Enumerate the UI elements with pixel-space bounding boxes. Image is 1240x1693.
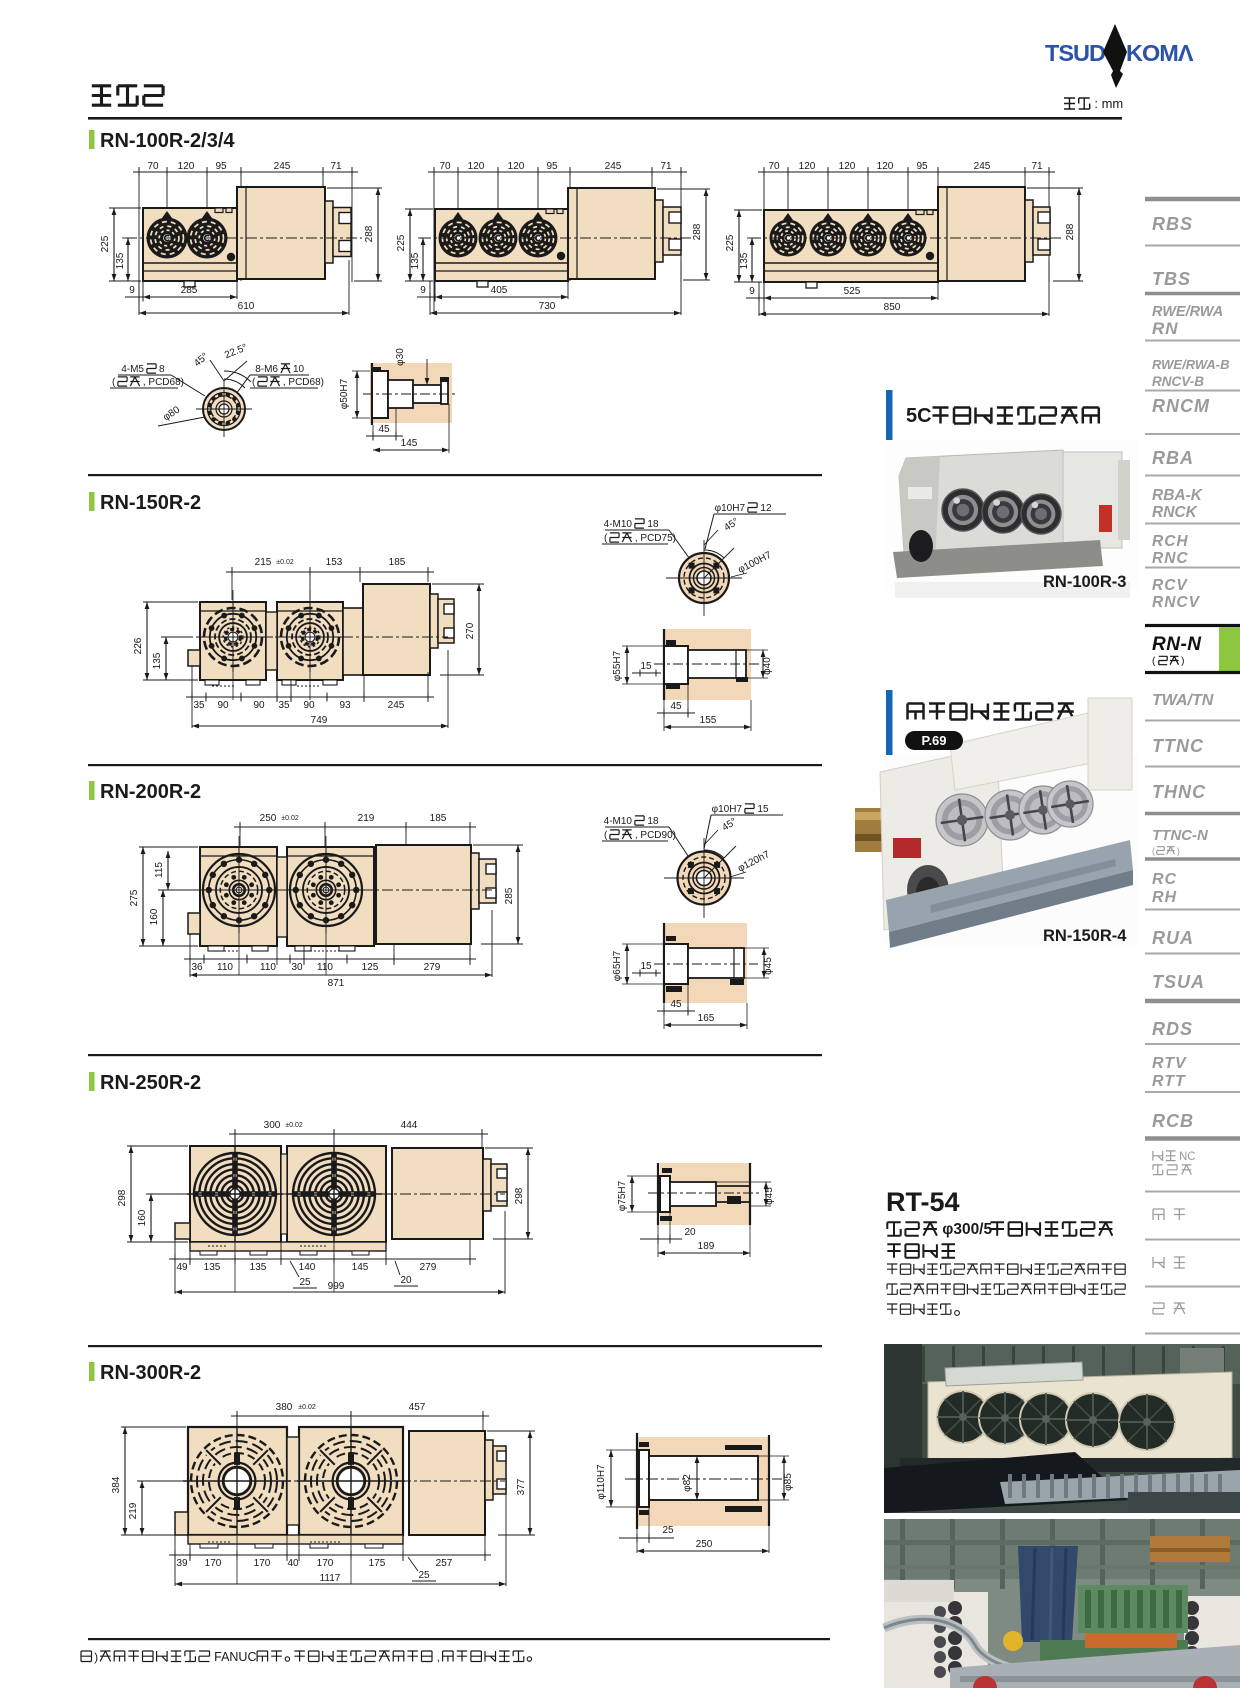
svg-text:φ30: φ30 (395, 348, 406, 366)
svg-text:444: 444 (401, 1120, 418, 1131)
svg-text:298: 298 (117, 1189, 128, 1206)
svg-text:RTV: RTV (1152, 1055, 1187, 1072)
svg-text:120: 120 (468, 161, 485, 172)
svg-text:850: 850 (884, 302, 901, 313)
svg-text:RNCM: RNCM (1152, 396, 1210, 416)
svg-text:125: 125 (362, 962, 379, 973)
svg-text:160: 160 (149, 908, 160, 925)
svg-text:TSUA: TSUA (1152, 972, 1205, 992)
svg-text:NC: NC (1179, 1151, 1196, 1163)
svg-text:120: 120 (839, 161, 856, 172)
svg-text:±0.02: ±0.02 (281, 815, 299, 822)
svg-text:φ50H7: φ50H7 (339, 378, 350, 409)
svg-text:RN-150R-4: RN-150R-4 (1043, 927, 1127, 945)
svg-text:8: 8 (159, 364, 165, 375)
svg-text:): ) (1181, 656, 1184, 667)
svg-text:288: 288 (364, 225, 375, 242)
svg-text:4-M10: 4-M10 (604, 816, 633, 827)
svg-text:RCV: RCV (1152, 577, 1188, 594)
svg-text:225: 225 (396, 234, 407, 251)
svg-text:RWE/RWA-B: RWE/RWA-B (1152, 357, 1230, 372)
svg-text:871: 871 (328, 978, 345, 989)
svg-text:RCB: RCB (1152, 1111, 1194, 1131)
svg-text:(: ( (1152, 846, 1155, 856)
svg-text:377: 377 (516, 1478, 527, 1495)
svg-text:9: 9 (749, 286, 755, 297)
svg-text:457: 457 (409, 1402, 426, 1413)
svg-text:245: 245 (605, 161, 622, 172)
svg-text:384: 384 (111, 1476, 122, 1493)
svg-text:71: 71 (1031, 161, 1043, 172)
svg-text:TWA/TN: TWA/TN (1152, 692, 1214, 709)
svg-text:135: 135 (152, 652, 163, 669)
svg-text:71: 71 (330, 161, 342, 172)
svg-text:TBS: TBS (1152, 269, 1191, 289)
svg-text:45: 45 (670, 999, 682, 1010)
svg-text:135: 135 (115, 252, 126, 269)
svg-text:93: 93 (339, 700, 351, 711)
svg-text:610: 610 (238, 301, 255, 312)
svg-text:90: 90 (303, 700, 315, 711)
svg-text:525: 525 (844, 286, 861, 297)
svg-text:φ10H7: φ10H7 (715, 503, 746, 514)
svg-text:257: 257 (436, 1558, 453, 1569)
svg-text:RN-250R-2: RN-250R-2 (100, 1072, 201, 1094)
svg-text:RCH: RCH (1152, 533, 1189, 550)
svg-text:): ) (94, 1650, 98, 1664)
svg-text:70: 70 (439, 161, 451, 172)
svg-text:RBS: RBS (1152, 214, 1193, 234)
svg-text:RBA-K: RBA-K (1152, 487, 1204, 504)
svg-text:35: 35 (193, 700, 205, 711)
svg-text:8-M6: 8-M6 (255, 364, 278, 375)
svg-text:999: 999 (328, 1281, 345, 1292)
svg-text:71: 71 (660, 161, 672, 172)
svg-text:110: 110 (260, 962, 276, 973)
svg-text:120: 120 (178, 161, 195, 172)
svg-text:12: 12 (760, 503, 772, 514)
svg-text:±0.02: ±0.02 (285, 1122, 303, 1129)
svg-text:, PCD75): , PCD75) (635, 533, 676, 544)
svg-text:45: 45 (378, 424, 390, 435)
svg-text:RDS: RDS (1152, 1019, 1193, 1039)
svg-text:145: 145 (401, 438, 418, 449)
svg-text:95: 95 (916, 161, 928, 172)
svg-text:±0.02: ±0.02 (276, 559, 294, 566)
svg-text:145: 145 (352, 1262, 369, 1273)
svg-text:1117: 1117 (320, 1573, 341, 1584)
svg-text:RN-300R-2: RN-300R-2 (100, 1362, 201, 1384)
svg-text:35: 35 (278, 700, 290, 711)
svg-text:RN-N: RN-N (1152, 634, 1202, 655)
svg-text:25: 25 (662, 1525, 674, 1536)
svg-text:φ300/5: φ300/5 (942, 1221, 992, 1238)
svg-text:245: 245 (388, 700, 405, 711)
svg-text:110: 110 (217, 962, 233, 973)
svg-text:185: 185 (389, 557, 406, 568)
svg-text:275: 275 (129, 889, 140, 906)
svg-text:175: 175 (369, 1558, 386, 1569)
svg-text:90: 90 (253, 700, 265, 711)
svg-text:120: 120 (799, 161, 816, 172)
svg-text:10: 10 (293, 364, 305, 375)
svg-text:18: 18 (647, 816, 659, 827)
svg-text:245: 245 (274, 161, 291, 172)
svg-text:288: 288 (692, 223, 703, 240)
svg-text:95: 95 (546, 161, 558, 172)
svg-text:FANUC: FANUC (214, 1650, 256, 1664)
svg-text:189: 189 (698, 1241, 715, 1252)
svg-text:300: 300 (264, 1120, 281, 1131)
svg-text:405: 405 (491, 285, 508, 296)
svg-text:95: 95 (215, 161, 227, 172)
svg-text:40: 40 (287, 1558, 299, 1569)
svg-text:170: 170 (317, 1558, 334, 1569)
svg-text:20: 20 (684, 1227, 696, 1238)
svg-text:160: 160 (137, 1209, 148, 1226)
svg-text:18: 18 (647, 519, 659, 530)
svg-text:250: 250 (696, 1539, 713, 1550)
svg-text:135: 135 (250, 1262, 267, 1273)
svg-text:±0.02: ±0.02 (298, 1404, 316, 1411)
svg-text:THNC: THNC (1152, 782, 1206, 802)
svg-text:380: 380 (276, 1402, 293, 1413)
svg-text:120: 120 (508, 161, 525, 172)
svg-text:RN-100R-3: RN-100R-3 (1043, 573, 1126, 591)
svg-text:15: 15 (640, 961, 652, 972)
svg-text:φ82: φ82 (682, 1474, 693, 1492)
svg-text:165: 165 (698, 1013, 715, 1024)
svg-text:749: 749 (311, 715, 328, 726)
svg-text:70: 70 (768, 161, 780, 172)
svg-text:4-M5: 4-M5 (121, 364, 144, 375)
svg-text:): ) (1177, 846, 1180, 856)
svg-text:9: 9 (420, 285, 426, 296)
svg-text:225: 225 (100, 235, 111, 252)
svg-text:135: 135 (204, 1262, 221, 1273)
svg-text:RTT: RTT (1152, 1073, 1186, 1090)
svg-text:285: 285 (181, 285, 198, 296)
svg-text:RBA: RBA (1152, 448, 1194, 468)
svg-text:RN-100R-2/3/4: RN-100R-2/3/4 (100, 130, 235, 152)
svg-text:RWE/RWA: RWE/RWA (1152, 304, 1223, 320)
svg-text:285: 285 (504, 887, 515, 904)
svg-text:φ65H7: φ65H7 (612, 950, 623, 981)
svg-text:135: 135 (410, 252, 421, 269)
svg-text:15: 15 (757, 804, 769, 815)
svg-text:120: 120 (877, 161, 894, 172)
svg-text:49: 49 (176, 1262, 188, 1273)
svg-text:P.69: P.69 (921, 733, 946, 748)
svg-text:RT-54: RT-54 (886, 1187, 960, 1217)
svg-text:9: 9 (129, 285, 135, 296)
svg-text:RN-150R-2: RN-150R-2 (100, 492, 201, 514)
svg-text:70: 70 (147, 161, 159, 172)
svg-text:4-M10: 4-M10 (604, 519, 633, 530)
svg-text:170: 170 (205, 1558, 222, 1569)
svg-text:250: 250 (260, 813, 277, 824)
svg-text:: mm: : mm (1094, 96, 1123, 111)
svg-text:226: 226 (133, 637, 144, 654)
svg-text:90: 90 (217, 700, 229, 711)
svg-text:215: 215 (255, 557, 272, 568)
svg-text:, PCD90): , PCD90) (635, 830, 676, 841)
svg-text:45: 45 (670, 701, 682, 712)
svg-text:RNCV-B: RNCV-B (1152, 374, 1204, 389)
svg-text:RN: RN (1152, 319, 1179, 338)
svg-text:279: 279 (424, 962, 441, 973)
svg-text:RNCV: RNCV (1152, 594, 1201, 611)
svg-text:RH: RH (1152, 889, 1177, 906)
svg-text:φ85: φ85 (783, 1473, 794, 1491)
svg-text:TSUD: TSUD (1045, 40, 1105, 66)
svg-text:245: 245 (974, 161, 991, 172)
svg-text:279: 279 (420, 1262, 437, 1273)
svg-text:RUA: RUA (1152, 928, 1194, 948)
svg-text:155: 155 (700, 715, 717, 726)
svg-text:TTNC-N: TTNC-N (1152, 827, 1209, 844)
svg-text:36: 36 (191, 962, 203, 973)
svg-text:φ110H7: φ110H7 (596, 1464, 607, 1500)
svg-text:185: 185 (430, 813, 447, 824)
svg-text:,: , (437, 1650, 440, 1664)
svg-text:115: 115 (154, 862, 165, 878)
svg-text:KOMΛ: KOMΛ (1126, 40, 1194, 66)
svg-text:298: 298 (514, 1187, 525, 1204)
svg-text:25: 25 (418, 1570, 430, 1581)
svg-text:RNC: RNC (1152, 550, 1189, 567)
svg-text:170: 170 (254, 1558, 271, 1569)
svg-text:135: 135 (739, 252, 750, 269)
svg-text:25: 25 (299, 1277, 311, 1288)
svg-text:153: 153 (326, 557, 343, 568)
svg-text:225: 225 (725, 234, 736, 251)
svg-text:110: 110 (317, 962, 333, 973)
svg-text:30: 30 (291, 962, 303, 973)
svg-text:RNCK: RNCK (1152, 504, 1199, 521)
svg-text:219: 219 (358, 813, 375, 824)
svg-text:RC: RC (1152, 871, 1177, 888)
svg-text:φ10H7: φ10H7 (712, 804, 743, 815)
svg-text:15: 15 (640, 661, 652, 672)
svg-text:φ75H7: φ75H7 (617, 1180, 628, 1211)
svg-text:219: 219 (128, 1502, 139, 1519)
svg-text:5C: 5C (906, 405, 932, 427)
svg-text:φ55H7: φ55H7 (612, 650, 623, 681)
svg-text:20: 20 (400, 1275, 412, 1286)
svg-text:140: 140 (299, 1262, 316, 1273)
svg-text:39: 39 (176, 1558, 188, 1569)
svg-text:270: 270 (465, 622, 476, 639)
svg-text:, PCD68): , PCD68) (283, 377, 324, 388)
svg-text:730: 730 (539, 301, 556, 312)
svg-text:RN-200R-2: RN-200R-2 (100, 781, 201, 803)
svg-text:288: 288 (1065, 223, 1076, 240)
svg-text:TTNC: TTNC (1152, 736, 1204, 756)
